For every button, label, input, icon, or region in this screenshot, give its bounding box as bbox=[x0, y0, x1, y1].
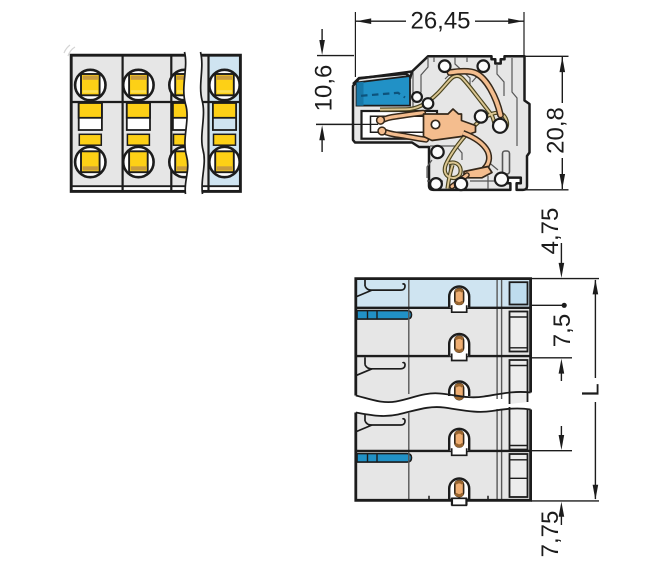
svg-text:10,6: 10,6 bbox=[311, 65, 338, 112]
svg-text:L: L bbox=[578, 383, 605, 396]
svg-text:20,8: 20,8 bbox=[543, 107, 570, 154]
svg-text:7,5: 7,5 bbox=[549, 314, 576, 347]
svg-text:4,75: 4,75 bbox=[537, 208, 564, 255]
svg-text:7,75: 7,75 bbox=[537, 511, 564, 558]
svg-text:26,45: 26,45 bbox=[410, 8, 470, 35]
